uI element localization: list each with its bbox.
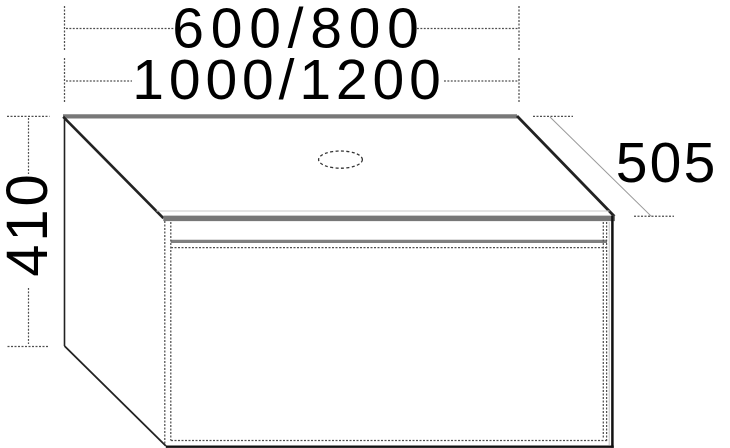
svg-text:410: 410 bbox=[0, 171, 60, 276]
svg-text:1000/1200: 1000/1200 bbox=[132, 48, 445, 112]
svg-text:505: 505 bbox=[616, 131, 718, 195]
